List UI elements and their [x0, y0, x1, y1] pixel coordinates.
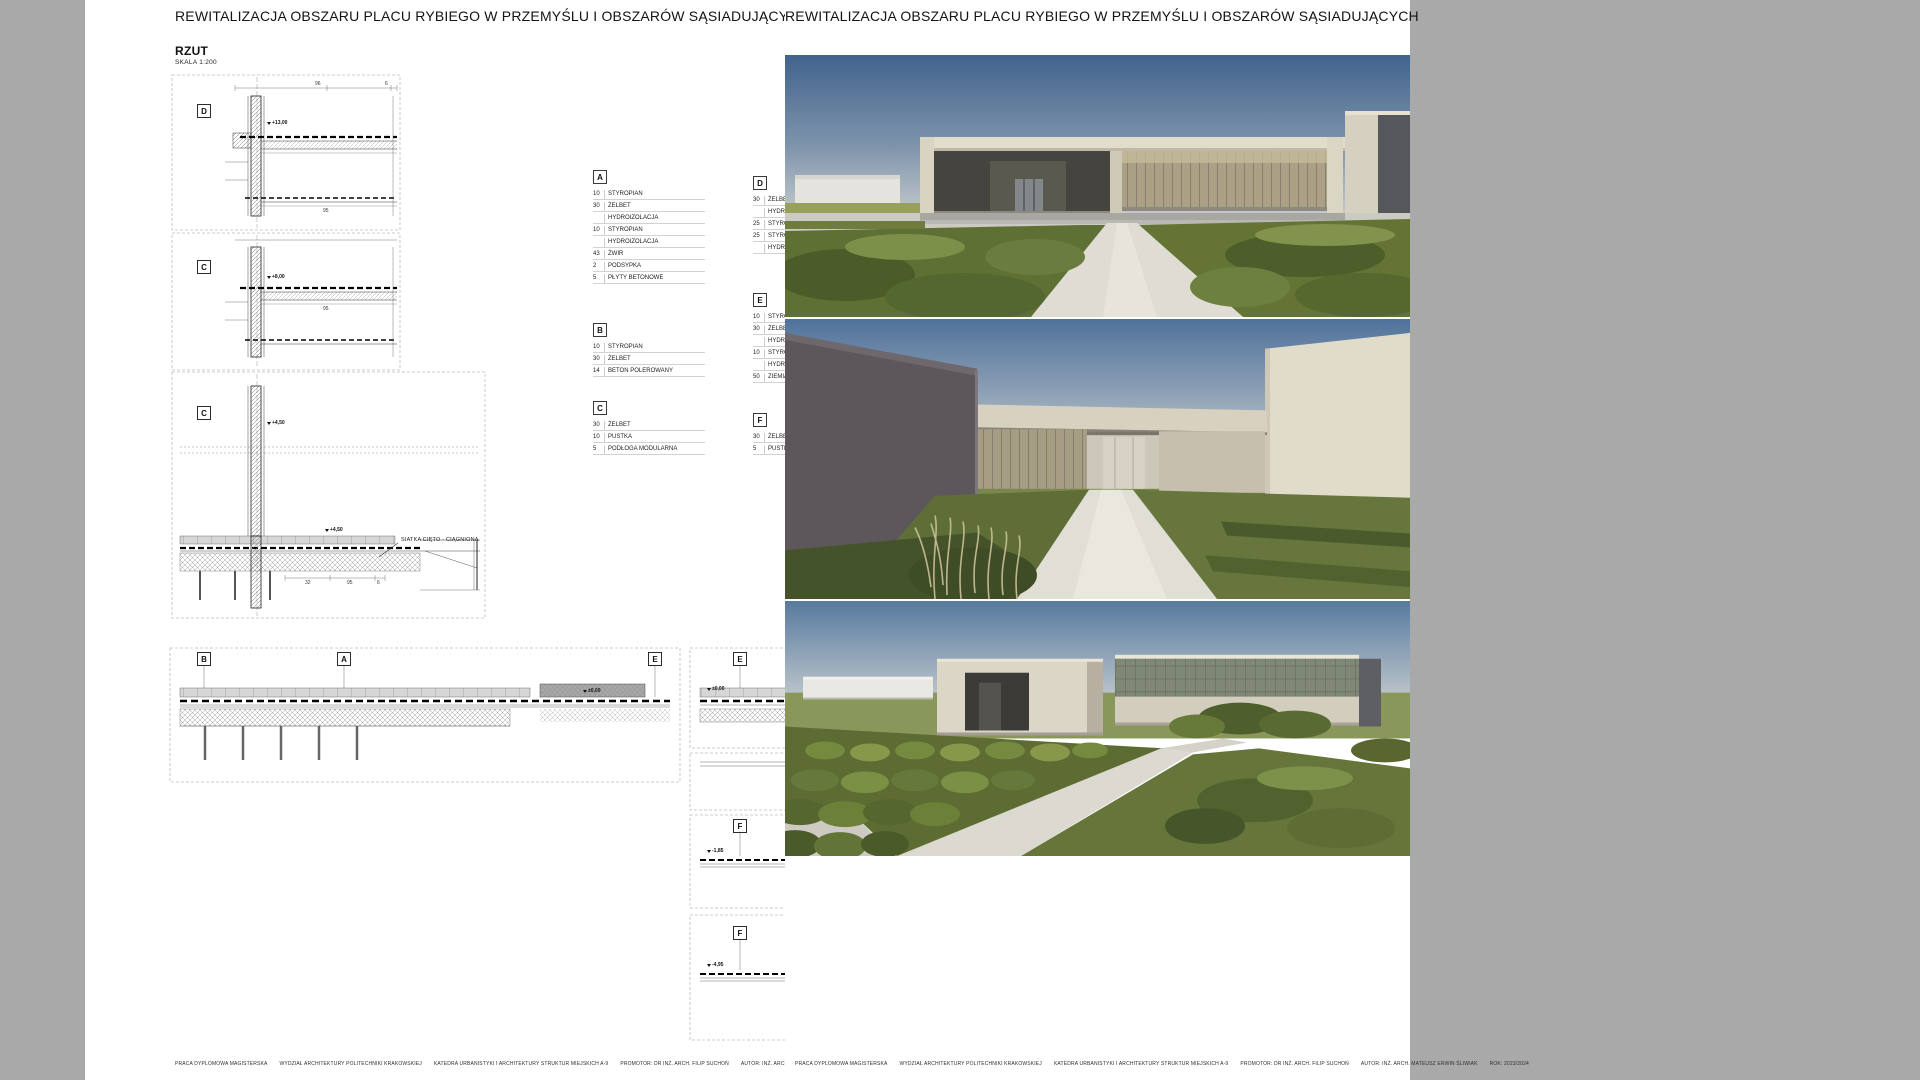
legend-row: 14BETON POLEROWANY: [593, 365, 705, 377]
legend-row: HYDROIZOLACJA: [593, 212, 705, 224]
legend-f-letter: F: [753, 413, 767, 427]
footer-item: WYDZIAŁ ARCHITEKTURY POLITECHNIKI KRAKOW…: [900, 1061, 1042, 1067]
section-plain-linework: [700, 757, 785, 806]
elevation-triangle-icon: [325, 529, 329, 532]
render-passage-view: [785, 319, 1410, 599]
footer-item: PRACA DYPLOMOWA MAGISTERSKA: [175, 1061, 268, 1067]
legend-c-letter: C: [593, 401, 607, 415]
section-e-linework: [700, 666, 785, 722]
elevation-triangle-icon: [267, 122, 271, 125]
elevation-mark: ±0,00: [707, 686, 724, 692]
section-tag-a: A: [337, 652, 351, 666]
elevation-mark: +8,00: [267, 274, 285, 280]
poster-canvas: REWITALIZACJA OBSZARU PLACU RYBIEGO W PR…: [0, 0, 1920, 1080]
elevation-triangle-icon: [267, 276, 271, 279]
section-tag-e1: E: [648, 652, 662, 666]
dimension-label: 95: [323, 306, 329, 312]
footer-item: KATEDRA URBANISTYKI I ARCHITEKTURY STRUK…: [1054, 1061, 1228, 1067]
board-renders: REWITALIZACJA OBSZARU PLACU RYBIEGO W PR…: [785, 0, 1410, 1080]
dimension-label: 6: [377, 580, 380, 586]
legend-d-letter: D: [753, 176, 767, 190]
elevation-mark: ±0,00: [583, 688, 600, 694]
footer-item: PRACA DYPLOMOWA MAGISTERSKA: [795, 1061, 888, 1067]
footer-item: WYDZIAŁ ARCHITEKTURY POLITECHNIKI KRAKOW…: [280, 1061, 422, 1067]
elevation-triangle-icon: [583, 690, 587, 693]
section-tag-f2: F: [733, 926, 747, 940]
legend-a: A 10STYROPIAN 30ŻELBET HYDROIZOLACJA 10S…: [593, 170, 707, 284]
elevation-triangle-icon: [267, 422, 271, 425]
board-right-title: REWITALIZACJA OBSZARU PLACU RYBIEGO W PR…: [785, 8, 1410, 24]
render-3-image: [785, 601, 1410, 856]
legend-b: B 10STYROPIAN 30ŻELBET 14BETON POLEROWAN…: [593, 323, 707, 377]
footer-item: AUTOR: INŻ. ARCH. MATEUSZ ERWIN ŚLIWIAK: [1361, 1061, 1478, 1067]
render-garden-view: [785, 601, 1410, 856]
section-tag-c1: C: [197, 260, 211, 274]
footer-item: PROMOTOR: DR INŻ. ARCH. FILIP SUCHOŃ: [620, 1061, 729, 1067]
legend-row: 30ŻELBET: [593, 353, 705, 365]
legend-row: 10STYROPIAN: [593, 224, 705, 236]
dimension-label: 32: [305, 580, 311, 586]
dimension-label: 95: [347, 580, 353, 586]
elevation-triangle-icon: [707, 964, 711, 967]
legend-row: 30ŻELBET: [593, 200, 705, 212]
section-f2-linework: [700, 927, 785, 1038]
legend-row: HYDROIZOLACJA: [593, 236, 705, 248]
legend-row: 10STYROPIAN: [593, 341, 705, 353]
elevation-mark: +4,50: [267, 420, 285, 426]
section-tag-b: B: [197, 652, 211, 666]
legend-row: 10PUSTKA: [593, 431, 705, 443]
detail-c2-linework: [180, 374, 480, 616]
legend-row: 10STYROPIAN: [593, 188, 705, 200]
section-tag-f1: F: [733, 819, 747, 833]
elevation-triangle-icon: [707, 850, 711, 853]
section-tag-c2: C: [197, 406, 211, 420]
footer-item: KATEDRA URBANISTYKI I ARCHITEKTURY STRUK…: [434, 1061, 608, 1067]
footer-right: PRACA DYPLOMOWA MAGISTERSKA WYDZIAŁ ARCH…: [795, 1061, 1529, 1067]
section-wide-linework: [180, 666, 670, 760]
legend-row: 2PODSYPKA: [593, 260, 705, 272]
detail-c1-linework: [225, 235, 397, 368]
elevation-mark: -4,95: [707, 962, 723, 968]
elevation-triangle-icon: [707, 688, 711, 691]
legend-row: 5PODŁOGA MODULARNA: [593, 443, 705, 455]
legend-b-letter: B: [593, 323, 607, 337]
dimension-label: 96: [315, 81, 321, 87]
legend-row: 30ŻELBET: [593, 419, 705, 431]
mesh-note: SIATKA CIĘTO - CIĄGNIONA: [401, 537, 479, 543]
section-tag-e2: E: [733, 652, 747, 666]
render-1-image: [785, 55, 1410, 317]
board-technical: REWITALIZACJA OBSZARU PLACU RYBIEGO W PR…: [85, 0, 785, 1080]
detail-d-linework: [225, 77, 397, 228]
dimension-label: 6: [385, 81, 388, 87]
section-tag-d: D: [197, 104, 211, 118]
footer-item: ROK: 2023/2024: [1490, 1061, 1529, 1067]
elevation-mark: -1,85: [707, 848, 723, 854]
render-2-image: [785, 319, 1410, 599]
legend-a-letter: A: [593, 170, 607, 184]
dimension-label: 95: [323, 208, 329, 214]
elevation-mark: +13,00: [267, 120, 287, 126]
legend-e-letter: E: [753, 293, 767, 307]
footer-item: PROMOTOR: DR INŻ. ARCH. FILIP SUCHOŃ: [1240, 1061, 1349, 1067]
elevation-mark: +4,50: [325, 527, 343, 533]
legend-row: 5PŁYTY BETONOWE: [593, 272, 705, 284]
legend-row: 43ŻWIR: [593, 248, 705, 260]
legend-c: C 30ŻELBET 10PUSTKA 5PODŁOGA MODULARNA: [593, 401, 707, 455]
render-entrance-view: [785, 55, 1410, 317]
